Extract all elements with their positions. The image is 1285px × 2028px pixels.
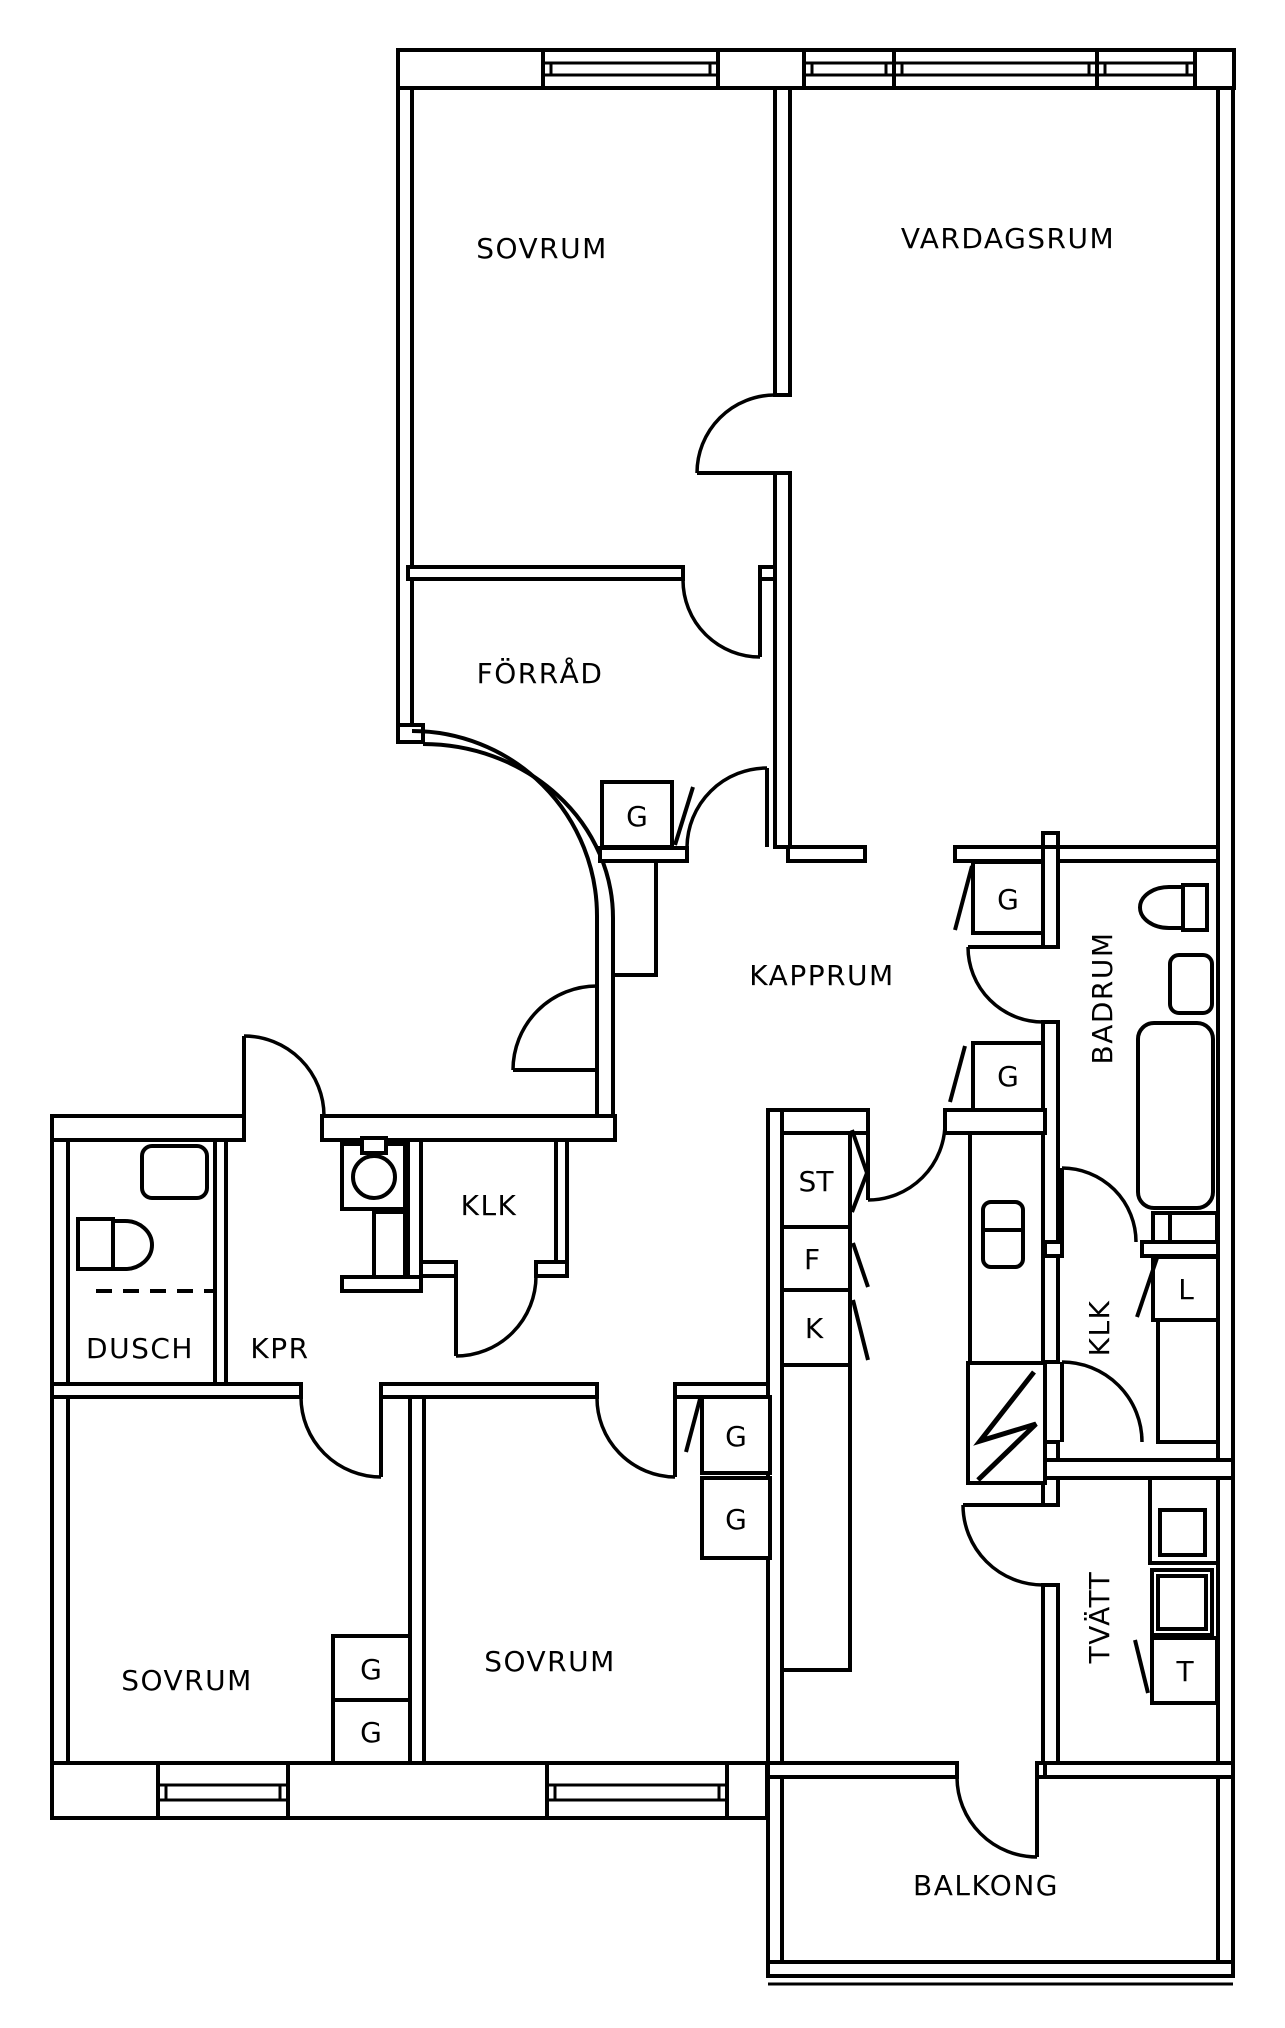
door-swing-arc — [687, 768, 767, 847]
closet-swing-line — [686, 1399, 700, 1452]
toilet-bowl-icon — [1140, 887, 1183, 928]
room-label-klk-inner: KLK — [461, 1189, 518, 1222]
closet-label-g: G — [997, 883, 1019, 916]
fixture-cabinet — [374, 1212, 405, 1277]
closet-label-g: G — [725, 1503, 747, 1536]
wall-segment — [768, 1763, 957, 1777]
door-swing-arc — [597, 1397, 675, 1477]
wall-segment — [1043, 1022, 1058, 1362]
closet-swing-line — [950, 1046, 965, 1102]
room-label-sovrum-mid: SOVRUM — [484, 1645, 616, 1678]
floor-plan-drawing: SOVRUM VARDAGSRUM FÖRRÅD KAPPRUM BADRUM … — [0, 0, 1285, 2028]
wall-segment — [342, 1277, 421, 1291]
wall-segment — [1142, 1242, 1218, 1256]
wall-segment — [1045, 1460, 1233, 1478]
curved-wall-outer — [412, 731, 597, 1142]
closet-label-g: G — [725, 1420, 747, 1453]
closet-label-l: L — [1178, 1273, 1194, 1306]
room-label-badrum: BADRUM — [1086, 931, 1119, 1064]
toilet-tank-icon — [78, 1219, 113, 1269]
wall-segment — [215, 1140, 226, 1397]
wall-segment — [788, 847, 865, 861]
window — [894, 50, 1097, 88]
top-exterior-wall — [398, 50, 1234, 88]
wall-segment — [1043, 833, 1058, 847]
room-label-forrad: FÖRRÅD — [477, 656, 604, 690]
window — [543, 50, 718, 88]
door-swing-arc — [1062, 1168, 1136, 1242]
closet-column — [782, 1133, 850, 1670]
wall-segment — [945, 1110, 1045, 1133]
wall-segment — [398, 50, 543, 88]
door-swing-arc — [683, 580, 760, 657]
door-swing-arc — [456, 1276, 536, 1356]
wall-segment — [1043, 847, 1058, 947]
wall-segment — [1045, 1763, 1233, 1777]
closet-label-st: ST — [799, 1165, 835, 1198]
door-swing-arc — [1062, 1362, 1142, 1442]
room-label-kpr: KPR — [250, 1332, 309, 1365]
appliance-inner — [1158, 1576, 1206, 1629]
wall-segment — [536, 1262, 567, 1276]
room-label-balkong: BALKONG — [913, 1869, 1059, 1902]
closet-swing-line — [675, 787, 693, 845]
wall-segment — [556, 1140, 567, 1276]
door-swing-arc — [968, 947, 1043, 1022]
window — [1097, 50, 1195, 88]
wall-segment — [718, 50, 804, 88]
wall-segment — [398, 88, 412, 730]
bathroom-cabinet — [1153, 1213, 1217, 1242]
closet-swing-line — [853, 1300, 868, 1360]
toilet-tank-icon — [1183, 885, 1207, 930]
toilet-bowl-icon — [113, 1221, 152, 1269]
room-label-sovrum-top: SOVRUM — [476, 232, 608, 265]
wall-segment — [955, 847, 1218, 861]
closet-swing-line — [853, 1243, 868, 1287]
window — [547, 1763, 727, 1818]
wall-segment — [1037, 1763, 1045, 1777]
closet-label-g: G — [997, 1060, 1019, 1093]
door-swing-arc — [513, 986, 597, 1070]
washing-machine-icon — [1160, 1510, 1205, 1555]
room-label-vardagsrum: VARDAGSRUM — [901, 222, 1115, 255]
room-label-kapprum: KAPPRUM — [749, 959, 894, 992]
wall-segment — [1218, 88, 1233, 1976]
closet-label-k: K — [805, 1312, 824, 1345]
wall-segment — [760, 567, 775, 579]
wall-segment — [408, 567, 683, 579]
wall-segment — [775, 473, 790, 847]
shower-icon — [142, 1146, 207, 1198]
balcony-door-swing-arc — [957, 1777, 1037, 1857]
washbasin-icon — [353, 1156, 395, 1198]
wall-segment — [398, 725, 423, 742]
wall-segment — [1043, 1585, 1058, 1765]
room-label-klk-right: KLK — [1083, 1300, 1116, 1357]
wall-segment — [775, 88, 790, 395]
wall-segment — [288, 1763, 547, 1818]
door-swing-arc — [963, 1505, 1043, 1585]
wall-segment — [600, 848, 687, 861]
walls — [52, 88, 1233, 1984]
sink-icon — [1170, 955, 1212, 1013]
wall-segment — [52, 1116, 244, 1140]
closet-swing-line — [1135, 1640, 1148, 1693]
window — [158, 1763, 288, 1818]
bottom-exterior-wall — [52, 1763, 767, 1818]
wall-segment — [727, 1763, 767, 1818]
closet-label-f: F — [804, 1243, 820, 1276]
closet-swing-line — [852, 1173, 867, 1212]
shaft-fixture — [983, 1202, 1023, 1267]
wall-segment — [782, 1110, 868, 1133]
entrance-door-swing-arc — [244, 1036, 324, 1116]
hall-niche — [613, 862, 656, 975]
room-label-dusch: DUSCH — [86, 1332, 194, 1365]
floor-plan: SOVRUM VARDAGSRUM FÖRRÅD KAPPRUM BADRUM … — [0, 0, 1285, 2028]
wall-segment — [52, 1763, 158, 1818]
closet-label-g: G — [626, 800, 648, 833]
closet-label-g: G — [360, 1716, 382, 1749]
window — [804, 50, 894, 88]
balcony-wall — [768, 1962, 1233, 1976]
door-swing-arc — [697, 395, 775, 473]
bathtub-icon — [1138, 1023, 1213, 1208]
faucet-icon — [362, 1138, 386, 1153]
room-label-tvatt: TVÄTT — [1083, 1571, 1116, 1665]
wall-segment — [410, 1397, 424, 1763]
room-labels: SOVRUM VARDAGSRUM FÖRRÅD KAPPRUM BADRUM … — [86, 222, 1119, 1902]
wall-segment — [1045, 1242, 1062, 1256]
wall-segment — [52, 1140, 68, 1765]
wall-segment — [421, 1262, 456, 1276]
room-label-sovrum-left: SOVRUM — [121, 1664, 253, 1697]
wall-segment — [1195, 50, 1234, 88]
wall-segment — [52, 1384, 301, 1397]
curved-wall-inner — [423, 744, 613, 1142]
closet-swing-line — [852, 1130, 867, 1173]
closet-label-g: G — [360, 1653, 382, 1686]
door-swing-arc — [301, 1397, 381, 1477]
door-swing-arc — [868, 1123, 945, 1200]
balcony-wall — [768, 1777, 782, 1962]
closet-label-t: T — [1175, 1655, 1194, 1688]
bench — [1158, 1320, 1218, 1442]
closet-swing-line — [955, 866, 972, 930]
